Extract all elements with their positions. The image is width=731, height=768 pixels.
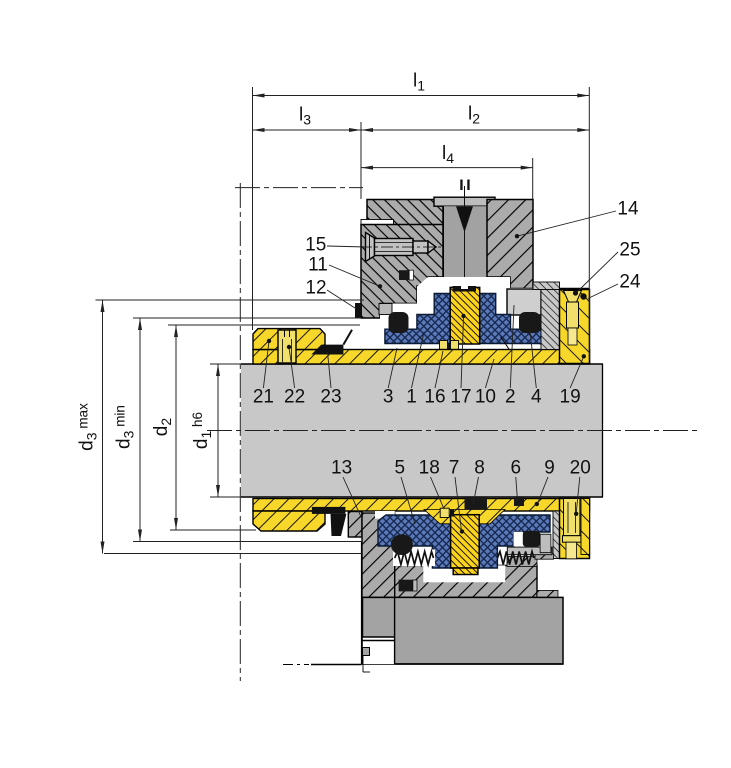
svg-text:5: 5 <box>395 457 406 478</box>
svg-text:24: 24 <box>619 272 641 293</box>
svg-text:18: 18 <box>419 457 440 478</box>
svg-text:12: 12 <box>305 278 326 299</box>
svg-text:25: 25 <box>619 240 640 261</box>
svg-text:13: 13 <box>331 457 352 478</box>
svg-text:15: 15 <box>305 235 326 256</box>
svg-text:19: 19 <box>560 386 581 407</box>
svg-text:7: 7 <box>449 457 460 478</box>
svg-text:8: 8 <box>474 457 485 478</box>
svg-text:3: 3 <box>383 386 394 407</box>
svg-text:21: 21 <box>253 386 274 407</box>
svg-text:2: 2 <box>505 386 516 407</box>
svg-text:23: 23 <box>320 386 341 407</box>
svg-text:6: 6 <box>511 457 522 478</box>
svg-text:1: 1 <box>406 386 417 407</box>
svg-text:17: 17 <box>450 386 471 407</box>
svg-text:16: 16 <box>424 386 445 407</box>
svg-text:4: 4 <box>531 386 542 407</box>
svg-text:22: 22 <box>284 386 305 407</box>
svg-text:10: 10 <box>475 386 496 407</box>
svg-text:11: 11 <box>308 255 328 276</box>
svg-text:14: 14 <box>617 199 639 220</box>
svg-text:20: 20 <box>570 457 591 478</box>
svg-text:9: 9 <box>544 457 555 478</box>
